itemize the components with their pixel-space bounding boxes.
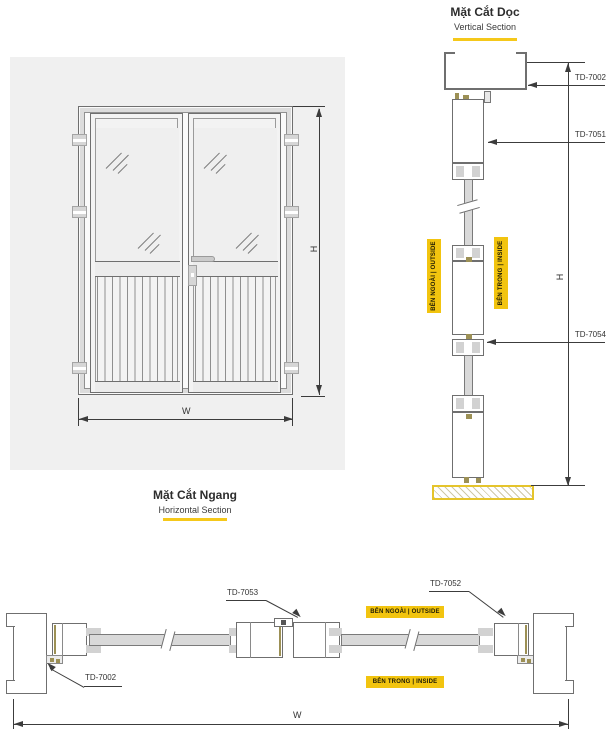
jamb-flange: [6, 680, 15, 694]
glazing-gasket: [472, 248, 480, 258]
door-top-rail-profile: [452, 99, 484, 163]
door-mid-rail-profile: [452, 261, 484, 335]
weather-strip: [525, 625, 527, 654]
glazing-clip: [466, 414, 472, 419]
callout-label: TD-7002: [548, 73, 606, 82]
callout-leader: [266, 600, 298, 618]
glazing-gasket: [456, 166, 464, 177]
frame-clip: [484, 91, 491, 103]
head-frame-hook: [444, 52, 455, 60]
head-frame-hook: [516, 52, 527, 60]
title-underline: [163, 518, 227, 521]
outside-label-horizontal: BÊN NGOÀI | OUTSIDE: [366, 606, 444, 618]
jamb-flange: [6, 613, 15, 627]
weather-strip: [54, 625, 56, 654]
drawing-sheet: H W Mặt Cắt Dọc Vertical Section: [0, 0, 606, 743]
dim-label-width: W: [293, 710, 302, 720]
vertical-section-title: Mặt Cắt Dọc: [425, 5, 545, 19]
inside-label-vertical: BÊN TRONG | INSIDE: [494, 237, 508, 309]
callout-label: TD-7002: [85, 673, 116, 682]
callout-leader: [488, 142, 605, 143]
glazing-gasket: [456, 342, 464, 353]
horizontal-section: Mặt Cắt Ngang Horizontal Section: [0, 480, 606, 743]
horizontal-section-title: Mặt Cắt Ngang: [135, 488, 255, 502]
glazing-gasket: [472, 166, 480, 177]
vertical-section: Mặt Cắt Dọc Vertical Section: [0, 0, 606, 520]
stile-inner-line: [518, 623, 519, 656]
callout-label: TD-7051: [548, 130, 606, 139]
jamb-flange: [565, 680, 574, 694]
glazing-gasket: [329, 645, 342, 653]
left-stile-profile: [52, 623, 87, 656]
callout-label: TD-7052: [430, 579, 461, 588]
left-jamb-profile: [13, 613, 47, 694]
glazing-gasket: [478, 645, 493, 653]
inside-label-horizontal: BÊN TRONG | INSIDE: [366, 676, 444, 688]
weather-strip: [279, 624, 281, 656]
stile-inner-line: [62, 623, 63, 656]
callout-leader: [50, 668, 85, 688]
head-frame-profile: [444, 58, 527, 90]
meeting-stile-left-profile: [236, 622, 283, 658]
callout-underline: [84, 686, 122, 687]
stile-inner-line: [250, 622, 251, 658]
dim-line-height: [568, 63, 569, 486]
arrowhead-left: [14, 721, 23, 727]
outside-label-vertical: BÊN NGOÀI | OUTSIDE: [427, 239, 441, 313]
vertical-section-subtitle: Vertical Section: [425, 22, 545, 32]
glazing-gasket: [478, 628, 493, 636]
jamb-flange: [565, 613, 574, 627]
callout-underline: [429, 591, 469, 592]
glazing-gasket: [456, 398, 464, 409]
arrowhead-down-right: [497, 608, 508, 619]
right-stile-profile: [494, 623, 529, 656]
callout-leader: [528, 85, 605, 86]
door-bottom-rail-profile: [452, 412, 484, 478]
glass-section: [464, 355, 473, 400]
arrowhead-left: [487, 339, 496, 345]
callout-label: TD-7054: [548, 330, 606, 339]
hinge-bracket: [517, 655, 534, 664]
horizontal-section-subtitle: Horizontal Section: [135, 505, 255, 515]
glazing-gasket: [86, 645, 101, 653]
glass-section: [464, 179, 473, 248]
title-underline: [453, 38, 517, 41]
glazing-gasket: [456, 248, 464, 258]
callout-leader: [487, 342, 605, 343]
glazing-gasket: [472, 398, 480, 409]
glazing-gasket: [472, 342, 480, 353]
dim-label-height: H: [556, 272, 563, 282]
arrowhead-left: [488, 139, 497, 145]
callout-underline: [226, 600, 266, 601]
astragal-seal: [281, 620, 286, 625]
callout-label: TD-7053: [227, 588, 258, 597]
arrowhead-left: [528, 82, 537, 88]
glass-section: [89, 634, 231, 646]
arrowhead-right: [559, 721, 568, 727]
arrowhead-down-right: [292, 609, 303, 620]
dim-line-width: [13, 724, 569, 725]
dim-extension-line: [527, 62, 585, 63]
arrowhead-up: [565, 63, 571, 72]
right-jamb-profile: [533, 613, 567, 694]
stile-inner-line: [325, 622, 326, 658]
glazing-clip: [466, 257, 472, 262]
